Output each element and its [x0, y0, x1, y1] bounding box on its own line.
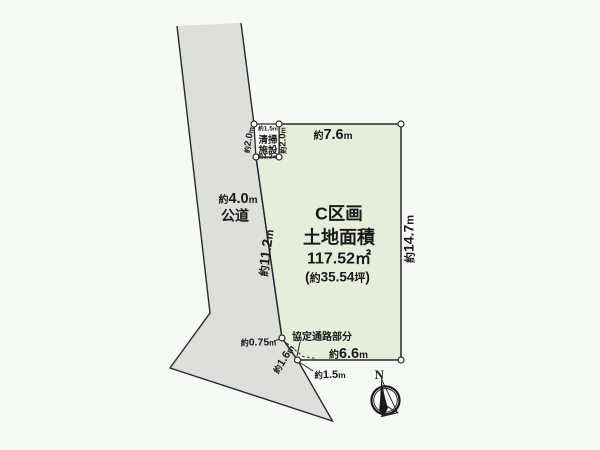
svg-text:N: N [375, 367, 385, 382]
svg-text:公道: 公道 [221, 208, 249, 224]
svg-text:約1.5m: 約1.5m [258, 125, 278, 133]
svg-text:約0.75m: 約0.75m [241, 337, 277, 349]
svg-text:117.52㎡: 117.52㎡ [307, 249, 371, 268]
svg-text:約1.2m: 約1.2m [258, 153, 278, 161]
svg-text:土地面積: 土地面積 [303, 227, 376, 248]
svg-text:(約35.54坪): (約35.54坪) [305, 270, 370, 285]
svg-text:協定通路部分: 協定通路部分 [292, 330, 352, 343]
svg-text:C区画: C区画 [315, 204, 363, 224]
svg-text:清掃: 清掃 [258, 134, 278, 146]
svg-text:約1.5m: 約1.5m [314, 369, 346, 381]
